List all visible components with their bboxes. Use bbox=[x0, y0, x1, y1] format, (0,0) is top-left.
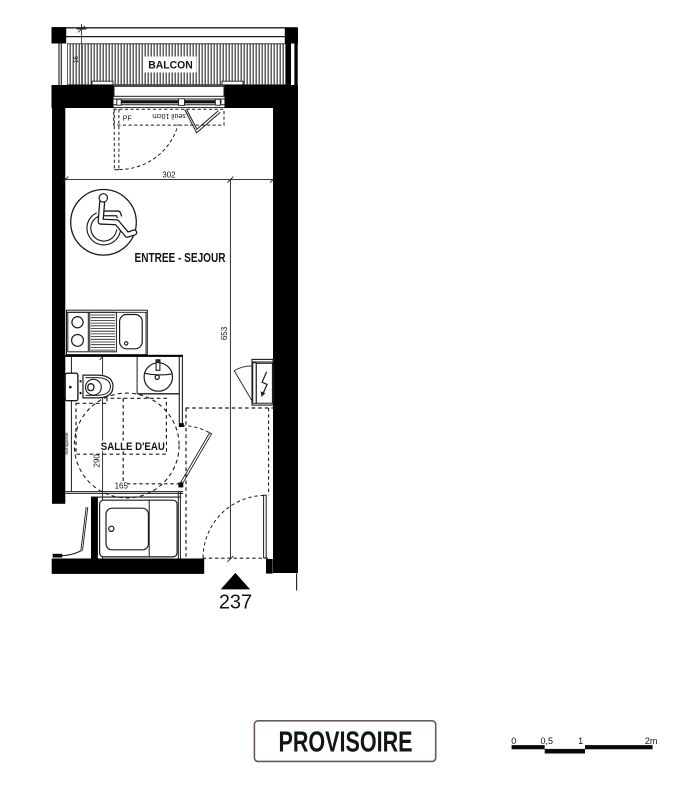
svg-text:BALCON: BALCON bbox=[148, 60, 193, 72]
svg-text:ENTREE - SEJOUR: ENTREE - SEJOUR bbox=[135, 250, 226, 265]
svg-text:1: 1 bbox=[578, 736, 583, 746]
svg-text:PF: PF bbox=[123, 116, 132, 123]
svg-text:0,5: 0,5 bbox=[541, 736, 554, 746]
svg-text:16: 16 bbox=[74, 56, 80, 63]
svg-text:237: 237 bbox=[219, 591, 252, 613]
svg-text:seuil 10cm: seuil 10cm bbox=[152, 112, 186, 119]
svg-text:banquette: banquette bbox=[64, 432, 70, 454]
svg-text:PROVISOIRE: PROVISOIRE bbox=[279, 726, 413, 758]
svg-text:653: 653 bbox=[220, 326, 229, 340]
svg-text:SALLE D'EAU: SALLE D'EAU bbox=[101, 441, 165, 453]
svg-text:302: 302 bbox=[162, 171, 176, 180]
svg-text:2m: 2m bbox=[645, 736, 658, 746]
svg-text:290: 290 bbox=[92, 454, 101, 468]
svg-text:0: 0 bbox=[511, 736, 516, 746]
svg-text:165: 165 bbox=[115, 482, 129, 491]
